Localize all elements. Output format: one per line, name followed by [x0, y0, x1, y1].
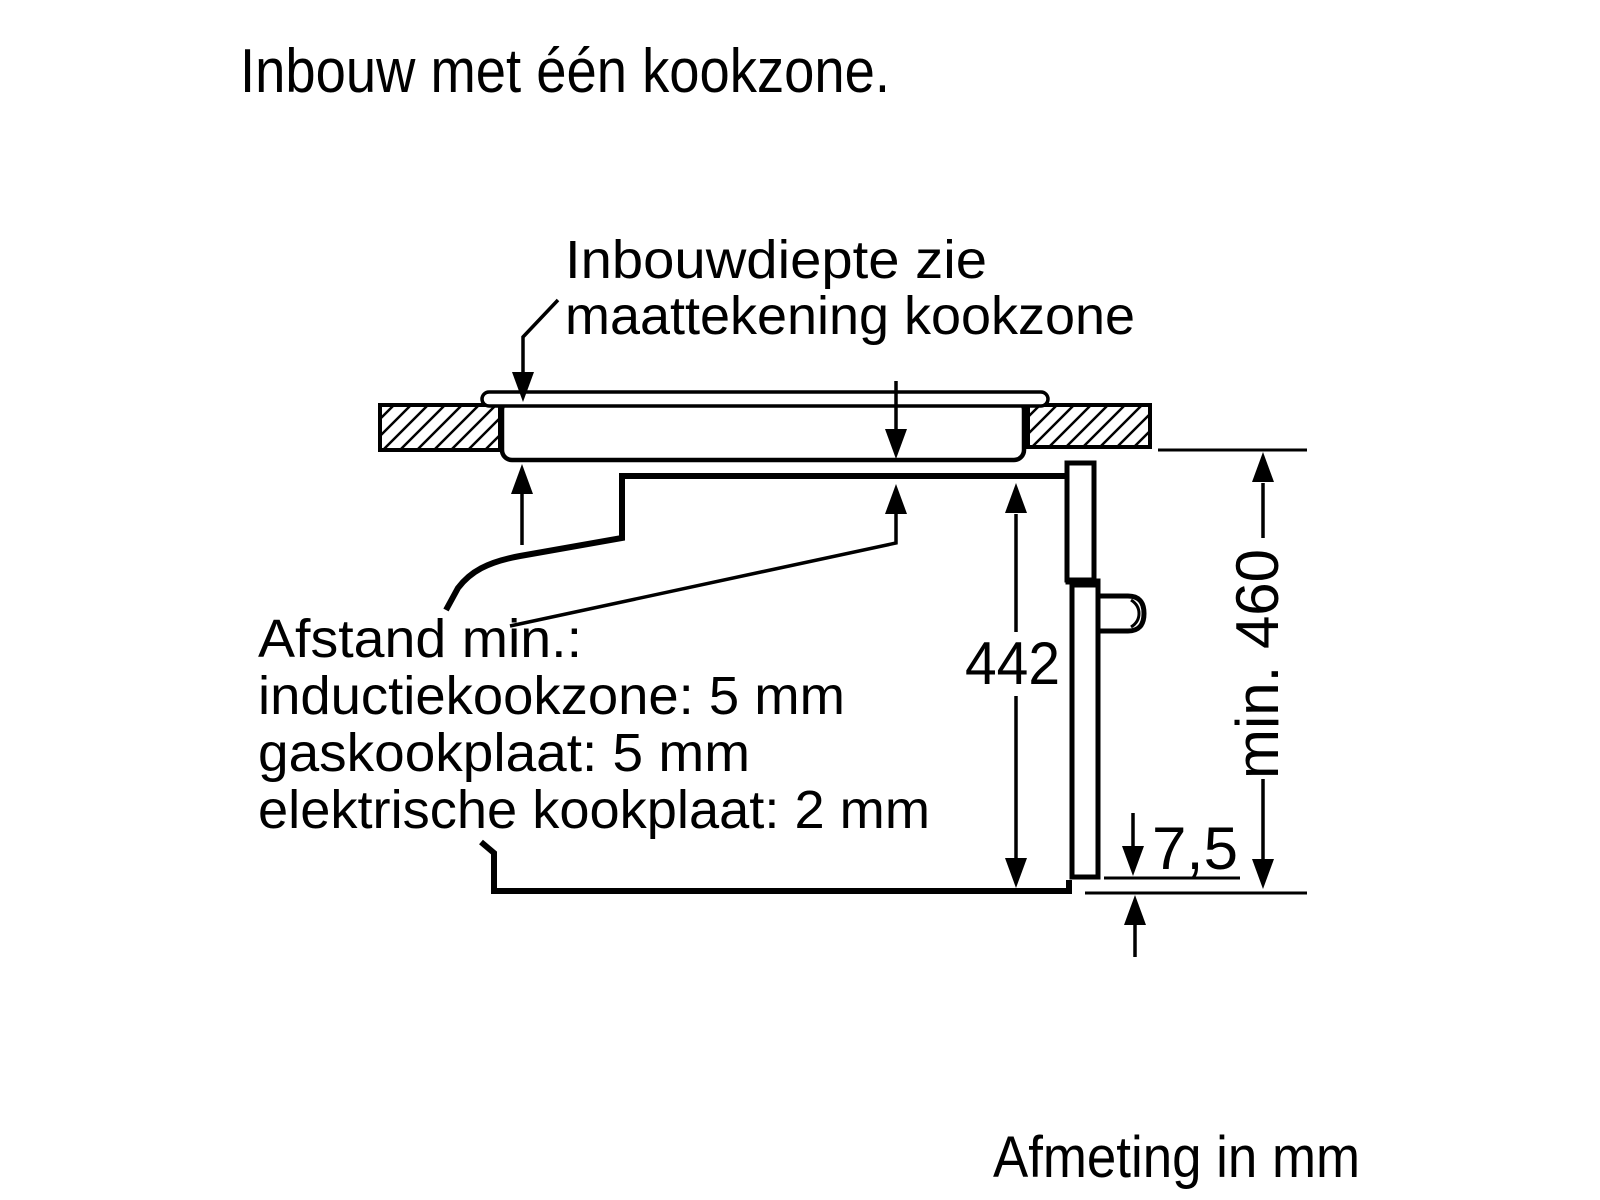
afstand-line-4: elektrische kookplaat: 2 mm — [258, 780, 930, 840]
worktop-right-hatch — [1028, 405, 1150, 447]
installation-diagram: 442 min. 460 7,5 Inbouw met één kookzone… — [0, 0, 1600, 1200]
cooktop-glass — [482, 392, 1048, 406]
note-line-2: maattekening kookzone — [565, 286, 1135, 346]
afstand-line-3: gaskookplaat: 5 mm — [258, 723, 750, 783]
footer-units-label: Afmeting in mm — [993, 1125, 1360, 1190]
worktop-left-hatch — [380, 405, 500, 450]
cooktop-body — [502, 400, 1024, 460]
dimension-442-label: 442 — [965, 630, 1060, 697]
oven-knob — [1098, 596, 1144, 631]
note-line-1: Inbouwdiepte zie — [565, 230, 987, 290]
page-title: Inbouw met één kookzone. — [240, 37, 890, 106]
afstand-line-1: Afstand min.: — [258, 609, 582, 669]
dimension-7-5-label: 7,5 — [1152, 815, 1238, 882]
dimension-min-460-label: min. 460 — [1224, 549, 1291, 779]
afstand-line-2: inductiekookzone: 5 mm — [258, 666, 845, 726]
installation-diagram-page: 442 min. 460 7,5 Inbouw met één kookzone… — [0, 0, 1600, 1200]
diagram-background — [0, 0, 1600, 1200]
